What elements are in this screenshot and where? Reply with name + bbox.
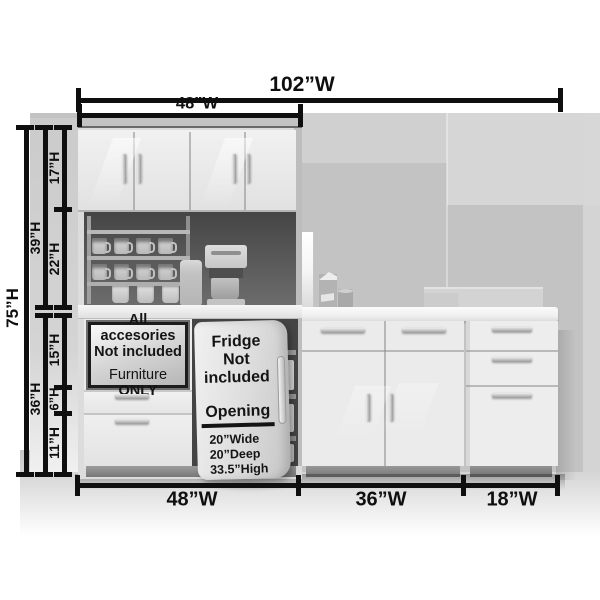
upper-door-seam bbox=[189, 132, 191, 210]
fridge-note-line-1: Fridge Not bbox=[198, 332, 274, 370]
shelf-board bbox=[87, 230, 190, 234]
mug bbox=[158, 264, 173, 280]
fridge-note-line-2: included bbox=[199, 368, 274, 388]
sign-line-1: All accesories bbox=[91, 312, 185, 344]
carton-label bbox=[321, 293, 334, 302]
dim-15h-label: 15”H bbox=[46, 334, 62, 367]
dim-48w-top-label: 48”W bbox=[176, 95, 218, 114]
dim-17h-label: 17”H bbox=[46, 152, 62, 185]
dim-22h-label: 22”H bbox=[46, 243, 62, 276]
fridge-spec-height: 33.5”High bbox=[210, 461, 269, 478]
wall-right-column bbox=[583, 113, 600, 472]
dim-75h-tick-top bbox=[16, 125, 34, 130]
cup bbox=[162, 284, 179, 303]
dim-11h-label: 11”H bbox=[46, 427, 62, 459]
mug bbox=[114, 264, 129, 280]
dim-bottom-tick-3 bbox=[461, 475, 466, 496]
upper-door-handle bbox=[246, 154, 250, 184]
canister-lid bbox=[338, 289, 353, 293]
base-18-drawer-seam bbox=[466, 385, 558, 387]
cup bbox=[137, 284, 154, 303]
shelf-board bbox=[87, 282, 190, 286]
base-18-drawer-handle bbox=[492, 357, 532, 362]
dim-48w-bottom-label: 48”W bbox=[166, 489, 217, 512]
coffee-maker-opening bbox=[209, 268, 243, 278]
dim-bottom-tick-1 bbox=[75, 475, 80, 496]
dim-6h-tick-bottom bbox=[54, 411, 72, 416]
mug bbox=[114, 238, 129, 254]
dim-18w-bottom-label: 18”W bbox=[486, 489, 537, 512]
mug bbox=[92, 238, 107, 254]
product-dimension-diagram: All accesories Not included Furniture ON… bbox=[0, 0, 600, 600]
milk-carton bbox=[319, 274, 337, 309]
wall-band-upper-right bbox=[447, 113, 600, 205]
coffee-maker-top bbox=[205, 245, 247, 268]
base-36-drawer-handle bbox=[402, 328, 446, 333]
dim-bottom-tick-2 bbox=[296, 475, 301, 496]
dim-bottom-line bbox=[77, 483, 560, 488]
dim-6h-label: 6”H bbox=[47, 387, 62, 410]
fridge-opening-heading: Opening bbox=[201, 402, 274, 428]
fridge-door: Fridge Not included Opening 20”Wide 20”D… bbox=[194, 320, 291, 480]
dim-75h-tick-bottom bbox=[16, 472, 34, 477]
dim-15h-6h-11h-line bbox=[62, 313, 67, 477]
mug bbox=[92, 264, 107, 280]
dim-22h-tick-bottom bbox=[54, 305, 72, 310]
dim-75h-label: 75”H bbox=[3, 288, 23, 328]
dim-75h-line bbox=[24, 125, 29, 477]
dim-36h-tick-top bbox=[35, 313, 53, 318]
base-36-drawer-handle bbox=[321, 328, 365, 333]
base-36-door-handle bbox=[389, 394, 393, 422]
carton-flap bbox=[319, 272, 337, 280]
coffee-carafe bbox=[211, 278, 239, 301]
dim-39h-tick-top bbox=[35, 125, 53, 130]
dim-48w-top-tick-right bbox=[298, 104, 303, 127]
base-36-door-handle bbox=[366, 394, 370, 422]
dim-48w-top-line bbox=[77, 113, 303, 118]
cup bbox=[112, 284, 129, 303]
dim-102w-line bbox=[76, 98, 563, 103]
fridge-spec-width: 20”Wide bbox=[209, 431, 268, 448]
base-18-drawer-seam bbox=[466, 350, 558, 352]
base-18-drawer-handle bbox=[492, 327, 532, 332]
coffee-maker-controls bbox=[211, 251, 241, 255]
dim-bottom-tick-4 bbox=[555, 475, 560, 496]
dim-17h-22h-line bbox=[62, 125, 67, 310]
upper-door-handle bbox=[137, 154, 141, 184]
upper-cabinet-bottom-edge bbox=[78, 210, 296, 212]
coffee-bag bbox=[180, 260, 202, 305]
fridge-spec-depth: 20”Deep bbox=[210, 446, 269, 463]
shelf-board bbox=[87, 256, 190, 260]
drawer-handle bbox=[115, 394, 149, 399]
dim-17h-tick-top bbox=[54, 125, 72, 130]
mug bbox=[158, 238, 173, 254]
dim-36h-tick-bottom bbox=[35, 472, 53, 477]
wall-band-upper-left bbox=[302, 113, 447, 163]
dim-11h-tick-bottom bbox=[54, 472, 72, 477]
base-18-drawer-handle bbox=[492, 393, 532, 398]
dim-102w-label: 102”W bbox=[269, 73, 334, 97]
sign-panel: All accesories Not included Furniture ON… bbox=[88, 322, 188, 388]
mug bbox=[136, 238, 151, 254]
drawer-handle bbox=[115, 419, 149, 424]
base-36-drawer-seam bbox=[302, 350, 464, 352]
right-wall-shadow bbox=[556, 330, 576, 480]
canister bbox=[338, 289, 353, 309]
upper-door-handle bbox=[232, 154, 236, 184]
dim-39h-label: 39”H bbox=[27, 222, 43, 255]
sign-line-3-text: Furniture bbox=[109, 367, 167, 383]
dim-102w-tick-right bbox=[558, 88, 563, 112]
dim-48w-top-tick-left bbox=[77, 104, 82, 127]
dim-36w-bottom-label: 36”W bbox=[355, 489, 406, 512]
fridge-door-handle bbox=[277, 356, 287, 424]
dim-36h-label: 36”H bbox=[27, 383, 43, 416]
dim-39h-tick-bottom bbox=[35, 305, 53, 310]
upper-door-handle bbox=[122, 154, 126, 184]
mug bbox=[136, 264, 151, 280]
base-countertop bbox=[302, 307, 558, 321]
dim-15h-tick-top bbox=[54, 313, 72, 318]
dim-17h-tick-bottom bbox=[54, 207, 72, 212]
sign-line-2: Not included bbox=[94, 344, 182, 360]
